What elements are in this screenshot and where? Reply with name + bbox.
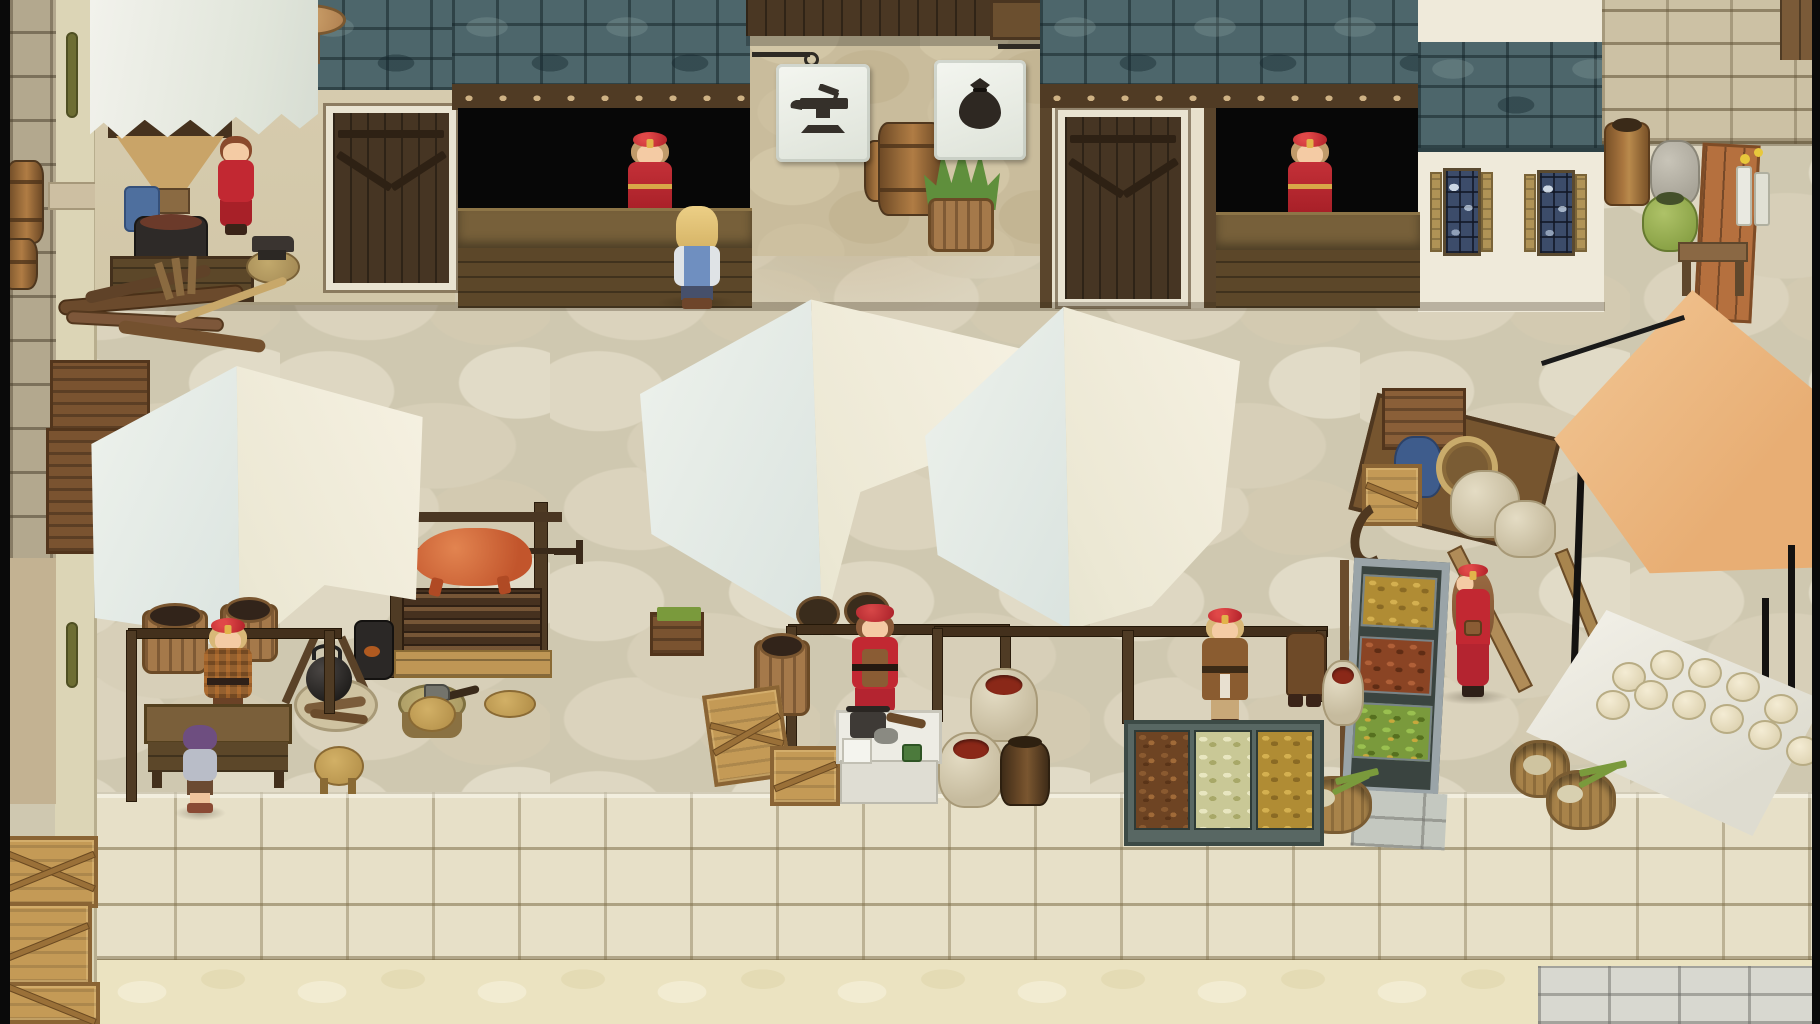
table-leg [274,770,284,788]
urn-mouth [1612,118,1642,132]
spice-sack[interactable] [1322,660,1364,726]
rack-green-pods [1352,702,1433,762]
boots [225,224,247,235]
boots [187,803,213,813]
barrel-band [880,144,940,148]
helper-boot [1306,694,1321,707]
gold-trim [628,184,672,189]
door-beam [1070,135,1177,143]
rack-yellow-pods [1361,574,1438,630]
torso [674,246,720,286]
mushroom [1557,785,1583,803]
torso [218,160,254,202]
timber-beam-row [452,84,754,110]
round-stool[interactable] [408,696,456,732]
spice-sack[interactable] [970,668,1038,742]
teal-roof-tiles [452,0,754,86]
npc-forge-assistant[interactable] [214,130,258,238]
window-shutter [1430,172,1442,252]
produce-bin[interactable] [1124,720,1324,846]
shirt [183,749,217,781]
sack-contents [1332,667,1354,684]
stall-post [1122,630,1134,724]
boots [682,298,712,309]
stall-post [932,628,943,722]
skirt [1457,644,1489,686]
game-viewport [0,0,1820,1024]
helper-boot [1288,694,1303,707]
timber-post [1040,108,1052,308]
clay-jar[interactable] [1000,742,1050,806]
anvil-base [258,250,286,260]
bin-pale-beans [1194,730,1252,830]
stool-leg [320,778,328,794]
barrel-opening [147,603,202,629]
grey-block-wall [1538,966,1820,1024]
vegetable-basket[interactable] [1546,770,1616,830]
blacksmith-sign[interactable] [776,64,870,162]
npc-stall-vendor-west[interactable] [202,618,254,718]
table-leg [152,770,162,788]
timber-beam-row [1040,84,1420,110]
basket-barrel[interactable] [142,610,208,674]
cap-tassel [225,625,232,634]
door-brace [335,151,392,192]
crate-brace [3,923,90,963]
window-shutter [1524,174,1536,252]
beret-tassel [1470,571,1477,580]
red-dress [1456,589,1490,647]
canister [1736,166,1752,226]
veg-crate[interactable] [650,612,704,656]
sack-contents [953,739,989,759]
spit-crank-handle [576,540,583,564]
coat-opening [1220,674,1230,698]
spice-sack[interactable] [938,732,1004,808]
small-table[interactable] [990,0,1044,40]
green-cup [902,744,922,762]
barrel-band [8,180,42,184]
door-brace [1122,158,1179,199]
money-bag-icon [948,74,1012,138]
counter-front [1216,250,1420,308]
bench-leg [1735,260,1744,296]
window-shutter [1575,174,1587,252]
trader-sign[interactable] [934,60,1026,160]
npc-child-customer[interactable] [180,722,220,816]
scale-arm [846,706,890,712]
npc-strolling-woman[interactable] [1446,564,1500,700]
door-brace [1067,158,1124,199]
shop-counter-east[interactable] [1216,212,1420,252]
legs [1211,699,1239,721]
door-brace [390,151,447,192]
crate[interactable] [4,982,100,1024]
belt [1202,666,1248,673]
plank-door-west[interactable] [326,106,456,290]
crate-greens [657,607,701,621]
teal-roof-tiles [1040,0,1420,86]
crate[interactable] [0,902,92,986]
crate[interactable] [770,746,840,806]
red-kerchief [856,604,894,622]
bin-dried-roots [1134,730,1190,830]
rake-tine [187,256,196,294]
basin-contents [140,214,202,230]
wall-peg [66,32,78,118]
dough-round [1650,650,1684,680]
gold-trim [1288,184,1332,189]
jar-rim [1008,736,1042,748]
white-box [842,738,872,764]
crate-brace [773,761,838,793]
belt [207,678,249,685]
lattice-window[interactable] [1443,168,1481,256]
crate-brace [7,983,98,1024]
bench-leg [1682,260,1691,296]
tall-urn[interactable] [1604,122,1650,206]
yellow-flower [1740,154,1750,164]
beret-tassel [647,139,654,148]
pillar-cap [48,182,100,210]
hand-cart[interactable] [1350,378,1562,574]
crate[interactable] [4,836,98,908]
mortar [874,728,898,744]
player-character[interactable] [666,204,728,306]
barrel[interactable] [6,160,44,244]
dough-round [1634,680,1668,710]
npc-stall-helper[interactable] [1286,632,1326,696]
wall-peg [66,622,78,688]
tub-opening [759,633,805,659]
iron-bracket [752,52,810,57]
lattice-window[interactable] [1537,170,1575,256]
dough-round [1764,694,1798,724]
purple-hair [183,725,217,751]
window-shutter [1481,172,1493,252]
dough-round [1748,720,1782,750]
sack-contents [985,675,1022,695]
wooden-bench[interactable] [1678,242,1748,262]
dough-round [1688,658,1722,688]
yellow-flower [1754,148,1763,157]
stall-east-canopy [925,300,1240,640]
stall-post [324,630,335,714]
beret-tassel [1307,139,1314,148]
anvil-icon [788,84,858,138]
dough-round [1596,690,1630,720]
screen-edge-left [0,0,10,1024]
turnip [1523,755,1551,775]
stool-leg [348,778,356,794]
cap-tassel [1222,615,1229,624]
plant-tub[interactable] [928,198,994,252]
barrel-band [8,218,42,222]
npc-stall-vendor-east[interactable] [1198,608,1252,736]
door-beam [338,130,445,138]
bin-golden-roots [1256,730,1314,830]
dough-round [1710,704,1744,734]
canister [1754,172,1770,226]
plank-door-east[interactable] [1058,110,1188,306]
cottage-roof [1418,42,1604,152]
skirt [220,200,252,226]
stall-post [126,630,137,802]
belt [852,664,898,671]
pot-opening [1656,192,1684,205]
screen-edge-right [1812,0,1820,1024]
npc-shopkeeper-east[interactable] [1282,132,1338,220]
satchel [1464,620,1482,636]
dough-round [1726,672,1760,702]
plaid-coat [204,648,252,698]
dough-round [1672,690,1706,720]
white-sack [1494,500,1556,558]
face [862,619,888,639]
dirt-strip [10,558,56,804]
round-stool[interactable] [484,690,536,718]
goods-table-front [840,760,938,804]
rack-red-roots [1357,636,1434,696]
